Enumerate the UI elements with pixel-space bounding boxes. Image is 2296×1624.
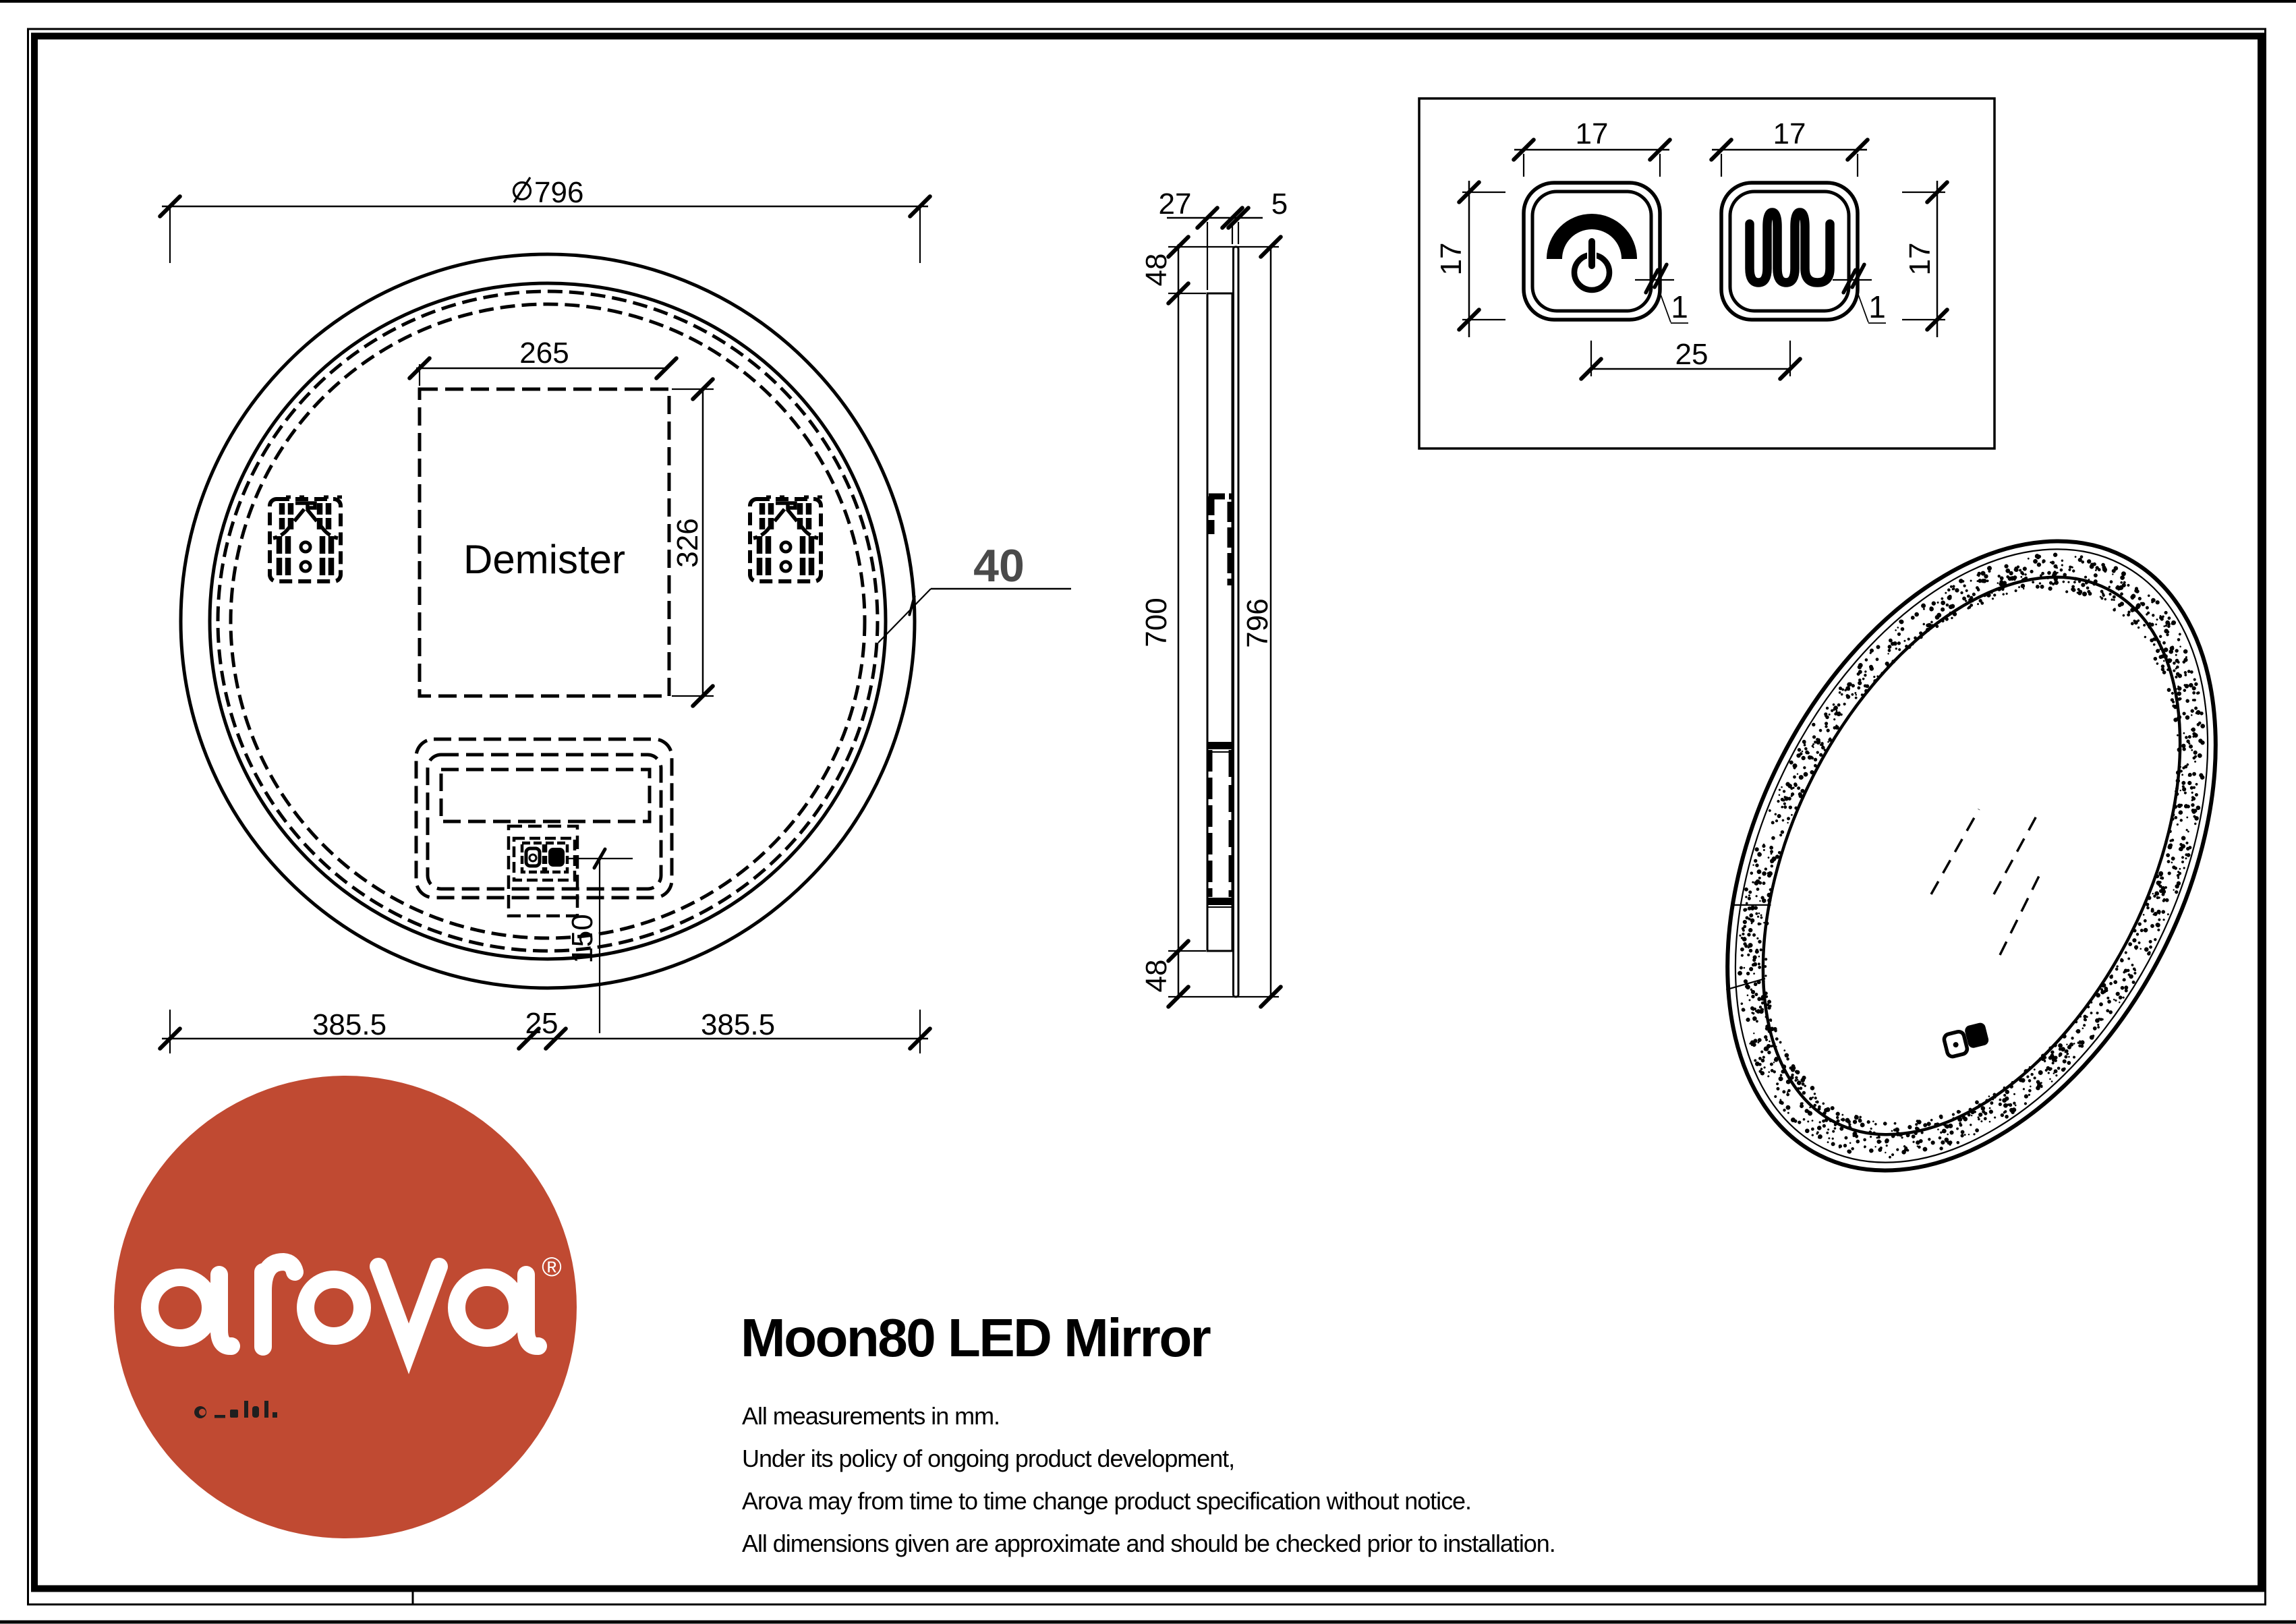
svg-text:1: 1 — [1671, 289, 1688, 324]
svg-text:265: 265 — [519, 337, 569, 370]
svg-text:17: 17 — [1903, 243, 1936, 276]
svg-text:1: 1 — [1868, 289, 1886, 324]
svg-text:17: 17 — [1435, 243, 1468, 276]
svg-text:25: 25 — [525, 1007, 558, 1040]
svg-text:5: 5 — [1271, 187, 1288, 221]
svg-text:Moon80 LED Mirror: Moon80 LED Mirror — [741, 1308, 1211, 1368]
svg-text:®: ® — [542, 1252, 561, 1282]
svg-text:700: 700 — [1140, 598, 1173, 647]
svg-text:Arova may from time to time ch: Arova may from time to time change produ… — [742, 1487, 1471, 1515]
svg-text:385.5: 385.5 — [312, 1008, 386, 1041]
svg-text:40: 40 — [973, 540, 1025, 591]
svg-text:All measurements in mm.: All measurements in mm. — [742, 1402, 1000, 1430]
svg-text:48: 48 — [1140, 960, 1173, 993]
svg-text:17: 17 — [1576, 117, 1609, 150]
svg-text:27: 27 — [1159, 187, 1192, 221]
svg-text:385.5: 385.5 — [701, 1008, 775, 1041]
svg-text:796: 796 — [534, 176, 583, 209]
svg-text:Demister: Demister — [463, 537, 625, 582]
svg-text:150: 150 — [566, 914, 599, 963]
svg-text:25: 25 — [1675, 338, 1709, 371]
svg-text:All dimensions given are appro: All dimensions given are approximate and… — [742, 1530, 1555, 1557]
svg-text:48: 48 — [1140, 254, 1173, 287]
svg-text:17: 17 — [1773, 117, 1806, 150]
svg-text:326: 326 — [671, 518, 704, 567]
svg-text:Under its policy of ongoing pr: Under its policy of ongoing product deve… — [742, 1445, 1234, 1472]
svg-text:796: 796 — [1241, 598, 1274, 647]
